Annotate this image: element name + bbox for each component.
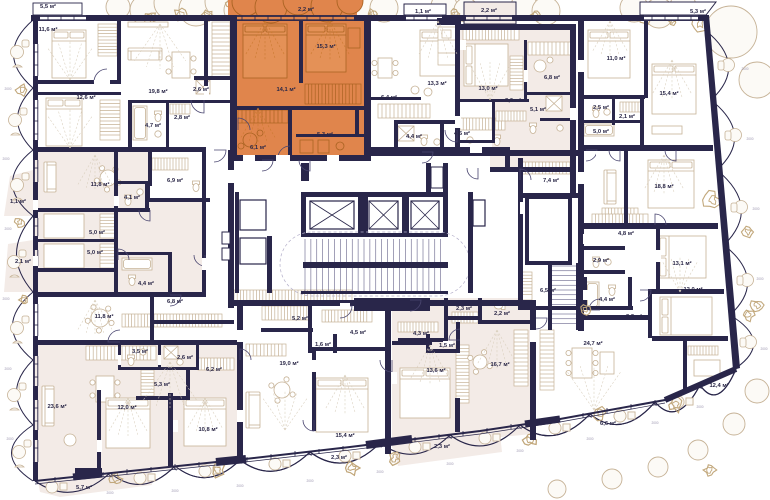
svg-text:2000: 2000: [2, 157, 9, 161]
svg-text:1,5 м²: 1,5 м²: [439, 342, 455, 349]
svg-text:4,7 м²: 4,7 м²: [145, 122, 161, 129]
svg-text:2000: 2000: [236, 484, 243, 488]
svg-text:5,3 м²: 5,3 м²: [690, 8, 706, 15]
svg-text:2,2 м²: 2,2 м²: [494, 310, 510, 317]
svg-text:2,3 м²: 2,3 м²: [456, 305, 472, 312]
svg-text:2,6 м²: 2,6 м²: [177, 354, 193, 361]
svg-text:2000: 2000: [2, 297, 9, 301]
svg-text:6,2 м²: 6,2 м²: [206, 366, 222, 373]
svg-text:2000: 2000: [741, 67, 748, 71]
svg-text:12,4 м²: 12,4 м²: [709, 382, 728, 389]
svg-text:14,1 м²: 14,1 м²: [276, 86, 295, 93]
svg-text:2000: 2000: [756, 277, 763, 281]
svg-text:4,3 м²: 4,3 м²: [413, 330, 429, 337]
svg-text:3,5 м²: 3,5 м²: [132, 348, 148, 355]
svg-text:2,3 м²: 2,3 м²: [434, 443, 450, 450]
svg-text:19,0 м²: 19,0 м²: [279, 360, 298, 367]
svg-text:2000: 2000: [746, 137, 753, 141]
svg-text:2000: 2000: [4, 367, 11, 371]
svg-text:13,1 м²: 13,1 м²: [672, 260, 691, 267]
svg-text:6,9 м²: 6,9 м²: [167, 177, 183, 184]
svg-text:5,0 м²: 5,0 м²: [87, 249, 103, 256]
svg-text:6,6 м²: 6,6 м²: [600, 420, 616, 427]
svg-text:2000: 2000: [4, 227, 11, 231]
svg-text:19,8 м²: 19,8 м²: [148, 88, 167, 95]
svg-text:2,1 м²: 2,1 м²: [15, 258, 31, 265]
svg-text:12,6 м²: 12,6 м²: [76, 94, 95, 101]
svg-text:5,0 м²: 5,0 м²: [593, 128, 609, 135]
svg-text:2000: 2000: [516, 449, 523, 453]
svg-text:11,8 м²: 11,8 м²: [91, 181, 110, 188]
svg-text:5,5 м²: 5,5 м²: [40, 3, 56, 10]
svg-text:15,4 м²: 15,4 м²: [659, 90, 678, 97]
svg-text:2,1 м²: 2,1 м²: [619, 113, 635, 120]
svg-text:2000: 2000: [760, 347, 767, 351]
svg-text:4,4 м²: 4,4 м²: [406, 133, 422, 140]
svg-text:2000: 2000: [4, 87, 11, 91]
svg-text:2000: 2000: [651, 421, 658, 425]
svg-text:2000: 2000: [171, 489, 178, 493]
svg-text:4,8 м²: 4,8 м²: [618, 230, 634, 237]
svg-text:2,0 м²: 2,0 м²: [505, 97, 521, 104]
svg-text:2000: 2000: [376, 470, 383, 474]
svg-text:2,3 м²: 2,3 м²: [331, 454, 347, 461]
svg-text:6,8 м²: 6,8 м²: [167, 298, 183, 305]
svg-text:23,6 м²: 23,6 м²: [47, 403, 66, 410]
svg-text:10,8 м²: 10,8 м²: [198, 426, 217, 433]
svg-text:4,5 м²: 4,5 м²: [454, 130, 470, 137]
svg-text:18,8 м²: 18,8 м²: [654, 183, 673, 190]
svg-text:4,5 м²: 4,5 м²: [350, 329, 366, 336]
svg-text:5,7 м²: 5,7 м²: [76, 484, 92, 491]
svg-text:12,0 м²: 12,0 м²: [683, 286, 702, 293]
svg-text:4,1 м²: 4,1 м²: [124, 194, 140, 201]
svg-text:2,5 м²: 2,5 м²: [593, 104, 609, 111]
svg-text:2000: 2000: [446, 462, 453, 466]
svg-text:13,3 м²: 13,3 м²: [427, 80, 446, 87]
svg-text:5,0 м²: 5,0 м²: [89, 229, 105, 236]
svg-text:13,0 м²: 13,0 м²: [478, 85, 497, 92]
svg-text:4,4 м²: 4,4 м²: [599, 296, 615, 303]
svg-text:6,4 м²: 6,4 м²: [381, 94, 397, 101]
svg-text:1,1 м²: 1,1 м²: [415, 8, 431, 15]
svg-text:13,6 м²: 13,6 м²: [426, 367, 445, 374]
svg-text:11,8 м²: 11,8 м²: [95, 313, 114, 320]
svg-text:5,3 м²: 5,3 м²: [317, 131, 333, 138]
svg-text:3,2 м²: 3,2 м²: [626, 313, 642, 320]
svg-text:11,6 м²: 11,6 м²: [39, 26, 58, 33]
svg-text:2,2 м²: 2,2 м²: [481, 7, 497, 14]
svg-text:15,3 м²: 15,3 м²: [316, 43, 335, 50]
svg-text:15,4 м²: 15,4 м²: [335, 432, 354, 439]
svg-text:2,2 м²: 2,2 м²: [298, 6, 314, 13]
svg-text:11,0 м²: 11,0 м²: [607, 55, 626, 62]
svg-text:24,7 м²: 24,7 м²: [583, 340, 602, 347]
svg-text:5,3 м²: 5,3 м²: [154, 381, 170, 388]
svg-text:6,8 м²: 6,8 м²: [544, 74, 560, 81]
svg-text:1,6 м²: 1,6 м²: [315, 341, 331, 348]
svg-text:2000: 2000: [6, 437, 13, 441]
svg-text:5,2 м²: 5,2 м²: [292, 315, 308, 322]
svg-text:2000: 2000: [696, 405, 703, 409]
svg-text:5,1 м²: 5,1 м²: [530, 106, 546, 113]
svg-text:2000: 2000: [752, 207, 759, 211]
svg-text:2000: 2000: [586, 437, 593, 441]
svg-text:2000: 2000: [306, 479, 313, 483]
svg-text:2,9 м²: 2,9 м²: [593, 257, 609, 264]
svg-text:1,1 м²: 1,1 м²: [10, 198, 26, 205]
svg-text:4,4 м²: 4,4 м²: [138, 280, 154, 287]
svg-text:16,7 м²: 16,7 м²: [490, 361, 509, 368]
svg-text:2000: 2000: [106, 491, 113, 495]
svg-text:12,0 м²: 12,0 м²: [117, 404, 136, 411]
svg-text:6,1 м²: 6,1 м²: [250, 144, 266, 151]
svg-text:2,6 м²: 2,6 м²: [193, 86, 209, 93]
svg-text:6,5 м²: 6,5 м²: [540, 287, 556, 294]
svg-text:7,4 м²: 7,4 м²: [543, 177, 559, 184]
svg-text:2,8 м²: 2,8 м²: [174, 114, 190, 121]
